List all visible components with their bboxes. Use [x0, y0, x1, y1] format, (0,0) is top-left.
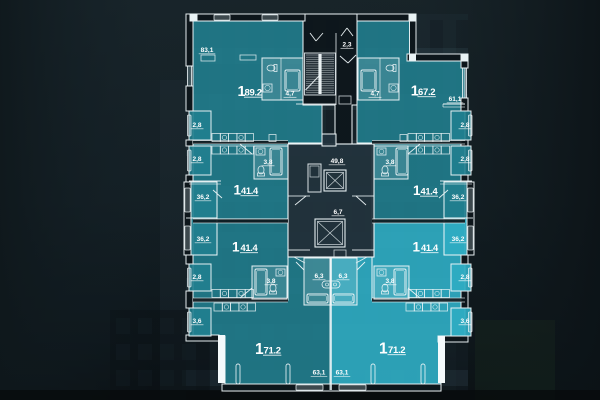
svg-text:3,8: 3,8 [266, 278, 275, 285]
svg-text:36,2: 36,2 [452, 194, 465, 201]
svg-text:36,2: 36,2 [452, 236, 465, 243]
svg-text:6,3: 6,3 [338, 273, 347, 280]
svg-text:1: 1 [379, 341, 388, 358]
svg-text:1: 1 [232, 240, 240, 255]
svg-text:2,8: 2,8 [192, 122, 201, 129]
svg-text:49,8: 49,8 [331, 158, 344, 165]
svg-text:6,7: 6,7 [333, 209, 342, 216]
svg-text:36,2: 36,2 [197, 236, 210, 243]
svg-text:3,8: 3,8 [263, 159, 272, 166]
svg-text:3,8: 3,8 [385, 159, 394, 166]
svg-text:1: 1 [413, 240, 421, 255]
svg-text:63,1: 63,1 [336, 370, 349, 377]
svg-text:61,1: 61,1 [449, 96, 462, 103]
svg-text:4,7: 4,7 [370, 91, 379, 98]
svg-text:36,2: 36,2 [197, 194, 210, 201]
svg-text:2,8: 2,8 [192, 274, 201, 281]
svg-text:3,6: 3,6 [460, 318, 469, 325]
svg-text:41.4: 41.4 [241, 186, 259, 196]
svg-text:2,8: 2,8 [192, 156, 201, 163]
svg-text:41.4: 41.4 [421, 243, 439, 253]
svg-text:6,3: 6,3 [314, 273, 323, 280]
svg-text:2,3: 2,3 [342, 42, 351, 49]
svg-text:2,8: 2,8 [460, 122, 469, 129]
svg-text:3,6: 3,6 [192, 318, 201, 325]
svg-text:83,1: 83,1 [201, 47, 214, 54]
svg-text:41.4: 41.4 [421, 187, 439, 197]
svg-text:63,1: 63,1 [313, 370, 326, 377]
svg-text:41.4: 41.4 [241, 243, 259, 253]
svg-text:3,8: 3,8 [385, 278, 394, 285]
svg-text:2,8: 2,8 [460, 274, 469, 281]
svg-text:2,8: 2,8 [460, 156, 469, 163]
svg-text:4,7: 4,7 [285, 91, 294, 98]
